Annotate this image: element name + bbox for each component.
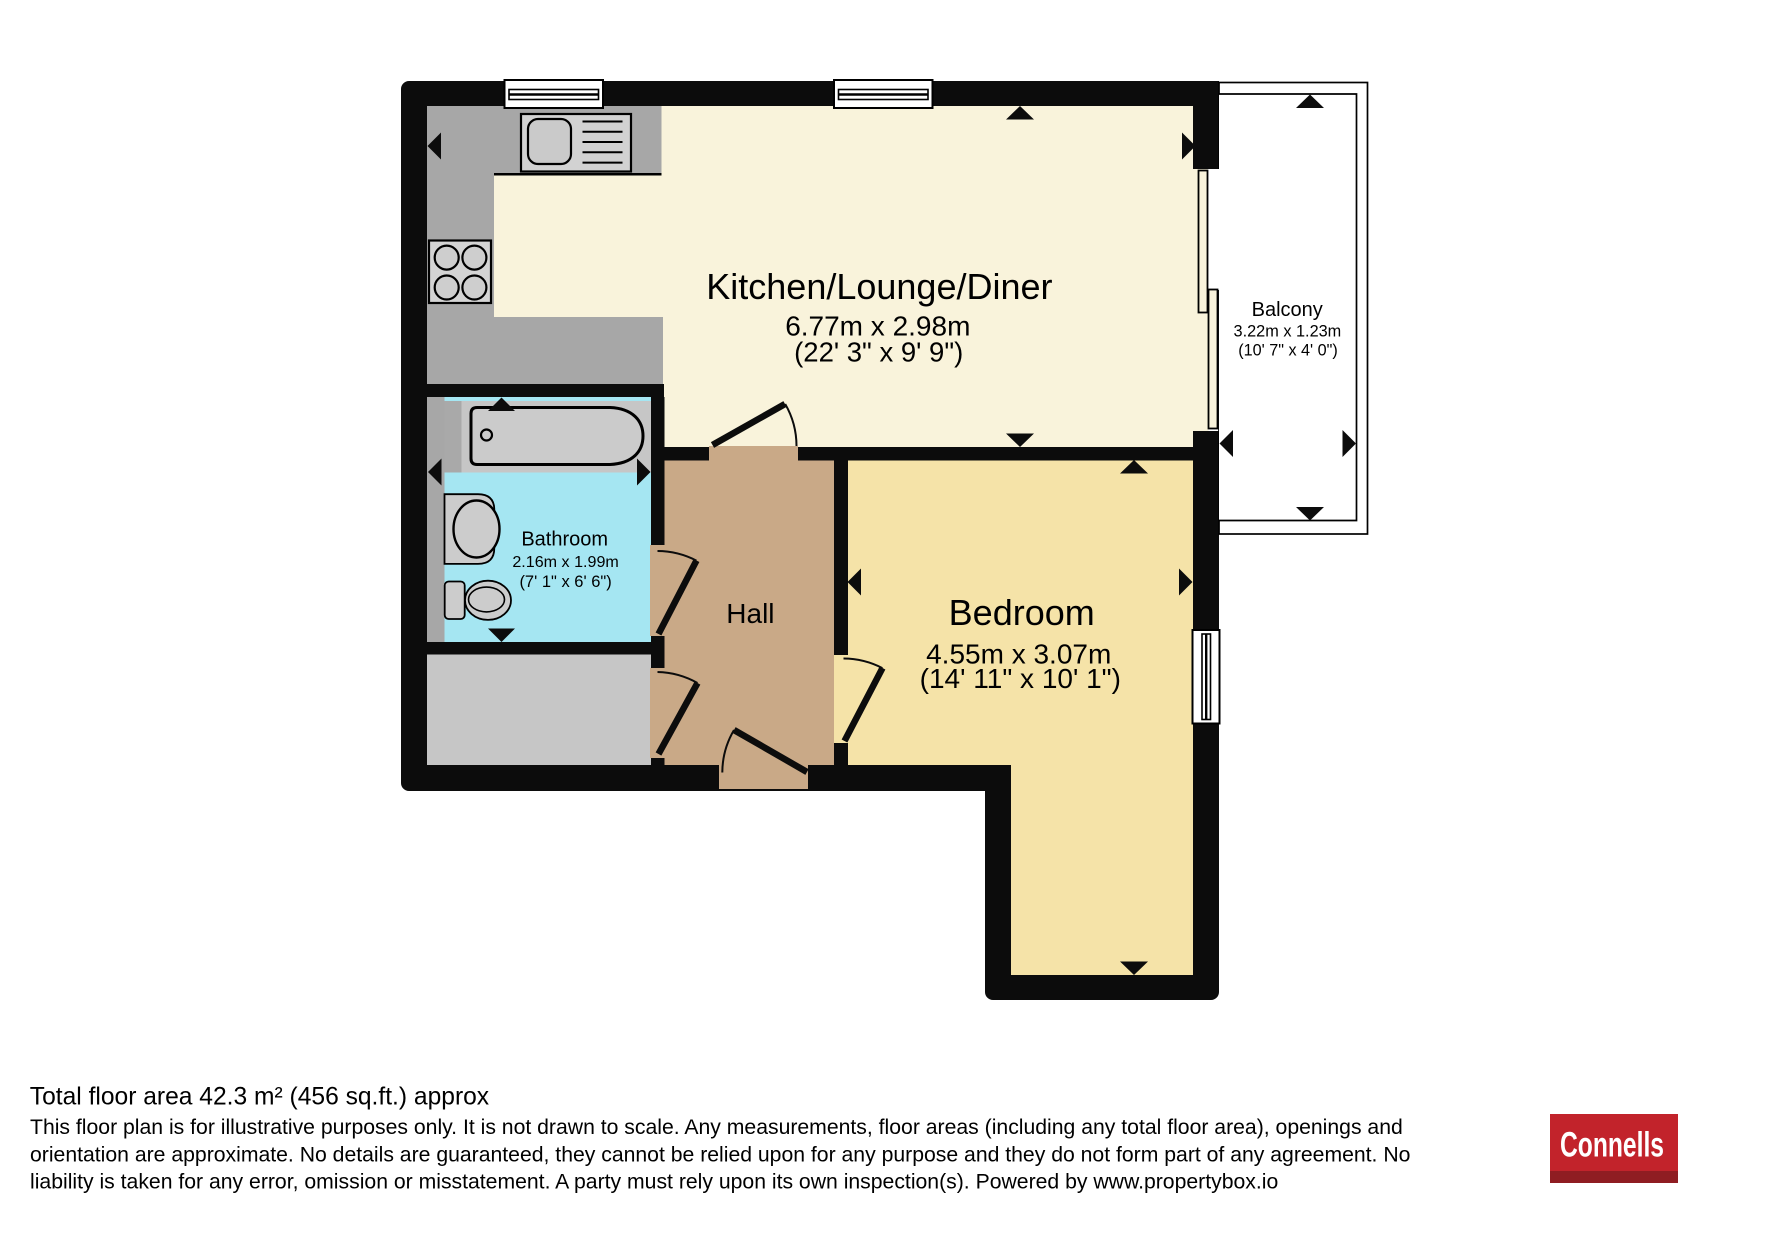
- svg-text:(10' 7" x 4' 0"): (10' 7" x 4' 0"): [1238, 342, 1338, 360]
- svg-text:(14' 11" x 10' 1"): (14' 11" x 10' 1"): [920, 663, 1121, 694]
- svg-text:This floor plan is for illustr: This floor plan is for illustrative purp…: [30, 1116, 1403, 1139]
- svg-text:(22' 3" x 9' 9"): (22' 3" x 9' 9"): [794, 337, 963, 368]
- svg-text:Connells: Connells: [1560, 1126, 1664, 1165]
- svg-text:2.16m x 1.99m: 2.16m x 1.99m: [512, 553, 618, 571]
- svg-text:liability is taken for any err: liability is taken for any error, omissi…: [30, 1171, 1278, 1194]
- svg-text:Bedroom: Bedroom: [949, 592, 1095, 633]
- svg-text:Total floor area 42.3 m² (456: Total floor area 42.3 m² (456 sq.ft.) ap…: [30, 1084, 490, 1111]
- svg-text:Hall: Hall: [726, 598, 774, 629]
- svg-text:(7' 1" x 6' 6"): (7' 1" x 6' 6"): [519, 573, 611, 591]
- svg-text:3.22m x 1.23m: 3.22m x 1.23m: [1234, 323, 1342, 341]
- svg-text:orientation are approximate. N: orientation are approximate. No details …: [30, 1143, 1410, 1166]
- svg-text:Bathroom: Bathroom: [521, 529, 608, 551]
- svg-text:Balcony: Balcony: [1252, 299, 1323, 321]
- svg-text:Kitchen/Lounge/Diner: Kitchen/Lounge/Diner: [706, 266, 1052, 307]
